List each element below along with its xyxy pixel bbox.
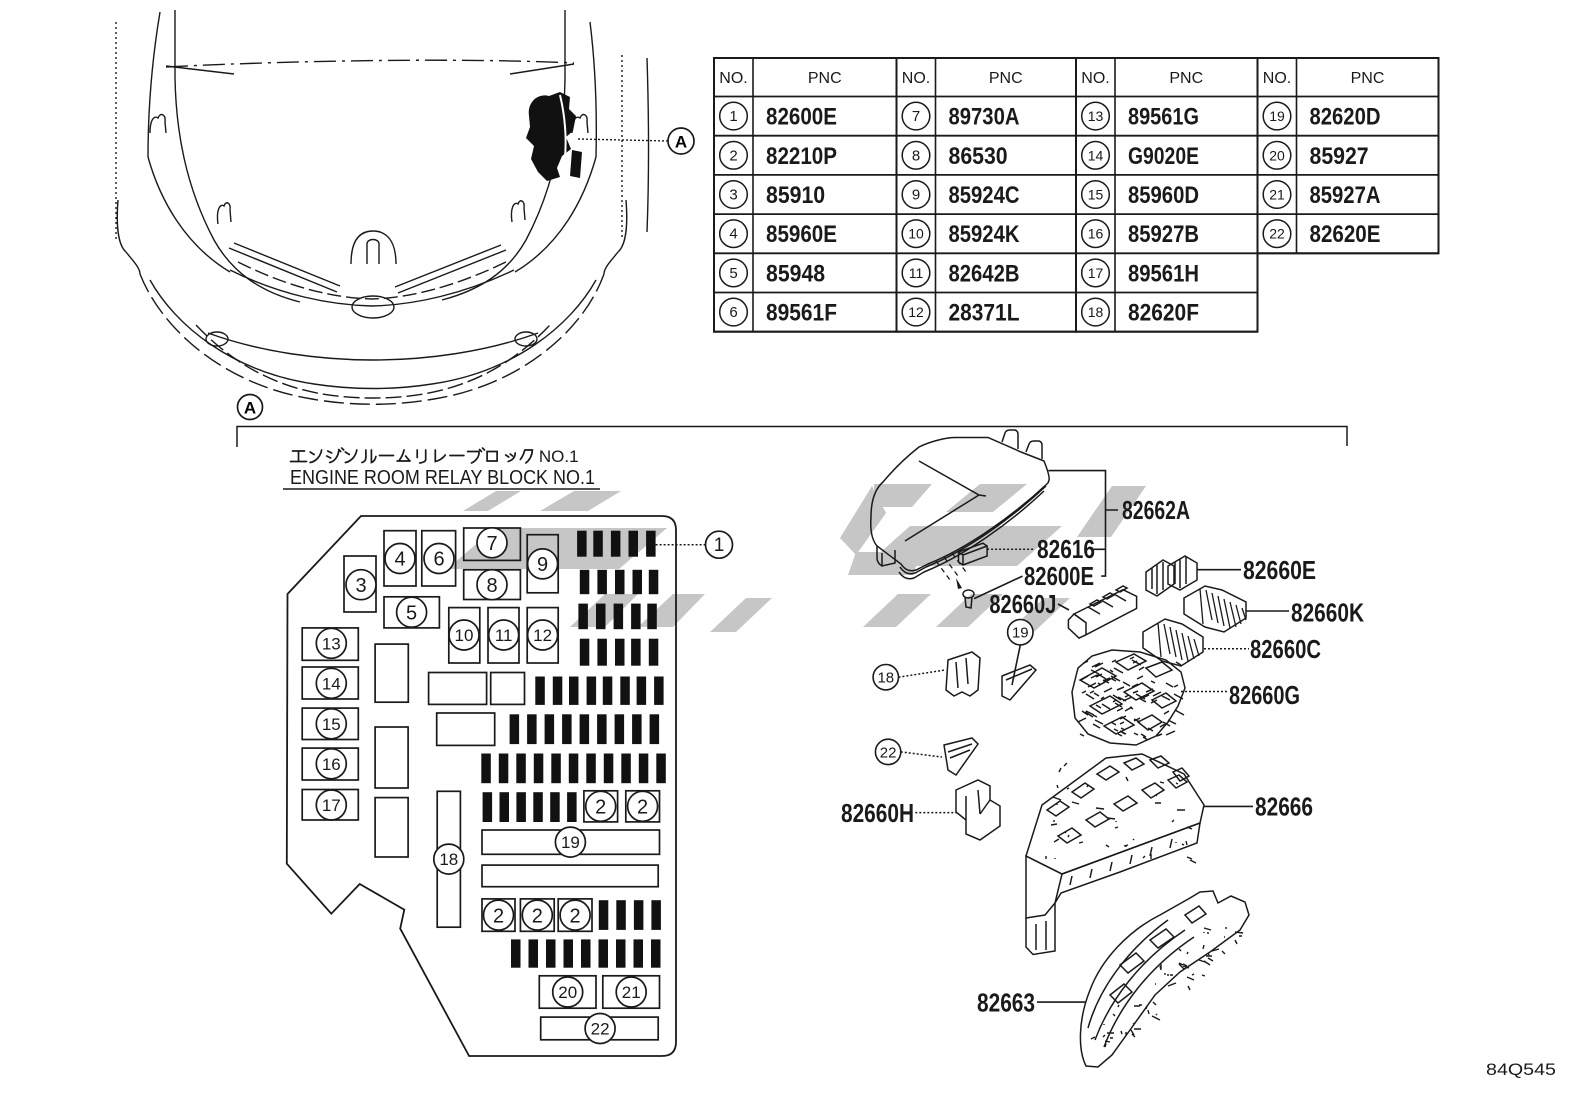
svg-text:22: 22 [591,1020,610,1039]
svg-text:19: 19 [1269,108,1285,124]
svg-text:10: 10 [908,226,924,242]
svg-text:NO.: NO. [1263,70,1291,87]
svg-text:14: 14 [322,674,341,693]
svg-text:18: 18 [1088,304,1104,320]
svg-text:82660C: 82660C [1250,634,1321,664]
svg-text:82620F: 82620F [1128,300,1199,327]
svg-text:11: 11 [909,265,924,281]
svg-text:82662A: 82662A [1122,495,1190,525]
svg-text:82660K: 82660K [1291,598,1364,628]
svg-text:85924K: 85924K [949,221,1021,248]
svg-text:5: 5 [729,265,737,282]
svg-text:PNC: PNC [808,70,842,87]
svg-text:4: 4 [394,549,405,571]
svg-text:82620E: 82620E [1310,221,1381,248]
svg-text:3: 3 [729,187,737,204]
svg-text:89730A: 89730A [949,104,1020,131]
svg-text:4: 4 [729,226,737,243]
svg-text:16: 16 [1088,226,1104,242]
svg-text:82620D: 82620D [1310,104,1381,131]
svg-text:PNC: PNC [989,70,1023,87]
svg-text:9: 9 [537,554,548,576]
svg-text:89561H: 89561H [1128,260,1199,287]
svg-text:8: 8 [912,147,920,164]
svg-text:82600E: 82600E [1024,561,1094,591]
svg-text:15: 15 [322,715,341,734]
svg-text:82666: 82666 [1255,791,1313,821]
svg-text:G9020E: G9020E [1128,143,1199,170]
svg-text:89561F: 89561F [766,300,837,327]
svg-text:12: 12 [533,626,552,645]
svg-text:NO.1: NO.1 [539,447,579,466]
svg-text:18: 18 [439,850,458,869]
svg-text:5: 5 [406,602,417,624]
svg-text:82210P: 82210P [766,143,837,170]
svg-text:9: 9 [912,187,920,204]
svg-text:82660E: 82660E [1243,555,1316,585]
svg-text:12: 12 [908,304,924,320]
svg-text:85924C: 85924C [949,182,1020,209]
svg-text:15: 15 [1088,187,1104,203]
svg-text:82600E: 82600E [766,104,837,131]
svg-text:ENGINE ROOM RELAY BLOCK NO.1: ENGINE ROOM RELAY BLOCK NO.1 [290,466,595,489]
svg-text:2: 2 [532,905,543,927]
svg-text:84Q545: 84Q545 [1486,1060,1556,1079]
svg-text:11: 11 [495,626,513,645]
svg-text:82660H: 82660H [841,798,914,828]
svg-text:85927: 85927 [1310,143,1369,170]
svg-text:20: 20 [558,983,577,1002]
svg-text:82660G: 82660G [1229,680,1300,710]
svg-text:85927B: 85927B [1128,221,1199,248]
svg-text:28371L: 28371L [949,300,1020,327]
svg-text:8: 8 [486,575,497,597]
svg-text:85960D: 85960D [1128,182,1199,209]
svg-text:21: 21 [622,983,641,1002]
svg-text:NO.: NO. [719,70,747,87]
svg-text:82663: 82663 [977,987,1035,1017]
svg-text:1: 1 [714,535,725,556]
svg-text:86530: 86530 [949,143,1008,170]
svg-text:2: 2 [729,147,737,164]
svg-text:A: A [244,399,256,418]
svg-text:85910: 85910 [766,182,825,209]
svg-text:NO.: NO. [902,70,930,87]
svg-text:3: 3 [355,575,366,597]
svg-text:85948: 85948 [766,260,825,287]
svg-text:17: 17 [322,796,341,815]
svg-text:PNC: PNC [1351,70,1385,87]
svg-text:82642B: 82642B [949,260,1020,287]
svg-text:85960E: 85960E [766,221,837,248]
svg-text:18: 18 [877,670,894,687]
svg-text:2: 2 [570,905,581,927]
svg-text:19: 19 [561,833,580,852]
svg-text:22: 22 [1269,226,1285,242]
svg-text:PNC: PNC [1169,70,1203,87]
svg-text:19: 19 [1012,625,1029,642]
svg-text:89561G: 89561G [1128,104,1199,131]
svg-text:14: 14 [1088,147,1104,163]
svg-text:2: 2 [637,797,648,819]
svg-text:7: 7 [486,533,497,555]
svg-text:7: 7 [912,108,920,125]
svg-text:13: 13 [1088,108,1104,124]
svg-text:17: 17 [1088,265,1104,281]
svg-text:82616: 82616 [1037,534,1095,564]
svg-text:85927A: 85927A [1310,182,1381,209]
svg-text:16: 16 [322,755,341,774]
svg-text:A: A [675,133,687,152]
svg-text:22: 22 [880,744,897,761]
svg-text:10: 10 [455,626,474,645]
svg-text:2: 2 [595,797,606,819]
svg-text:21: 21 [1269,187,1285,203]
svg-text:13: 13 [322,634,341,653]
svg-text:20: 20 [1269,147,1285,163]
svg-text:NO.: NO. [1081,70,1109,87]
svg-text:82660J: 82660J [989,589,1056,619]
svg-text:6: 6 [729,304,737,321]
svg-text:2: 2 [493,905,504,927]
svg-text:6: 6 [433,549,444,571]
svg-text:1: 1 [729,108,737,125]
